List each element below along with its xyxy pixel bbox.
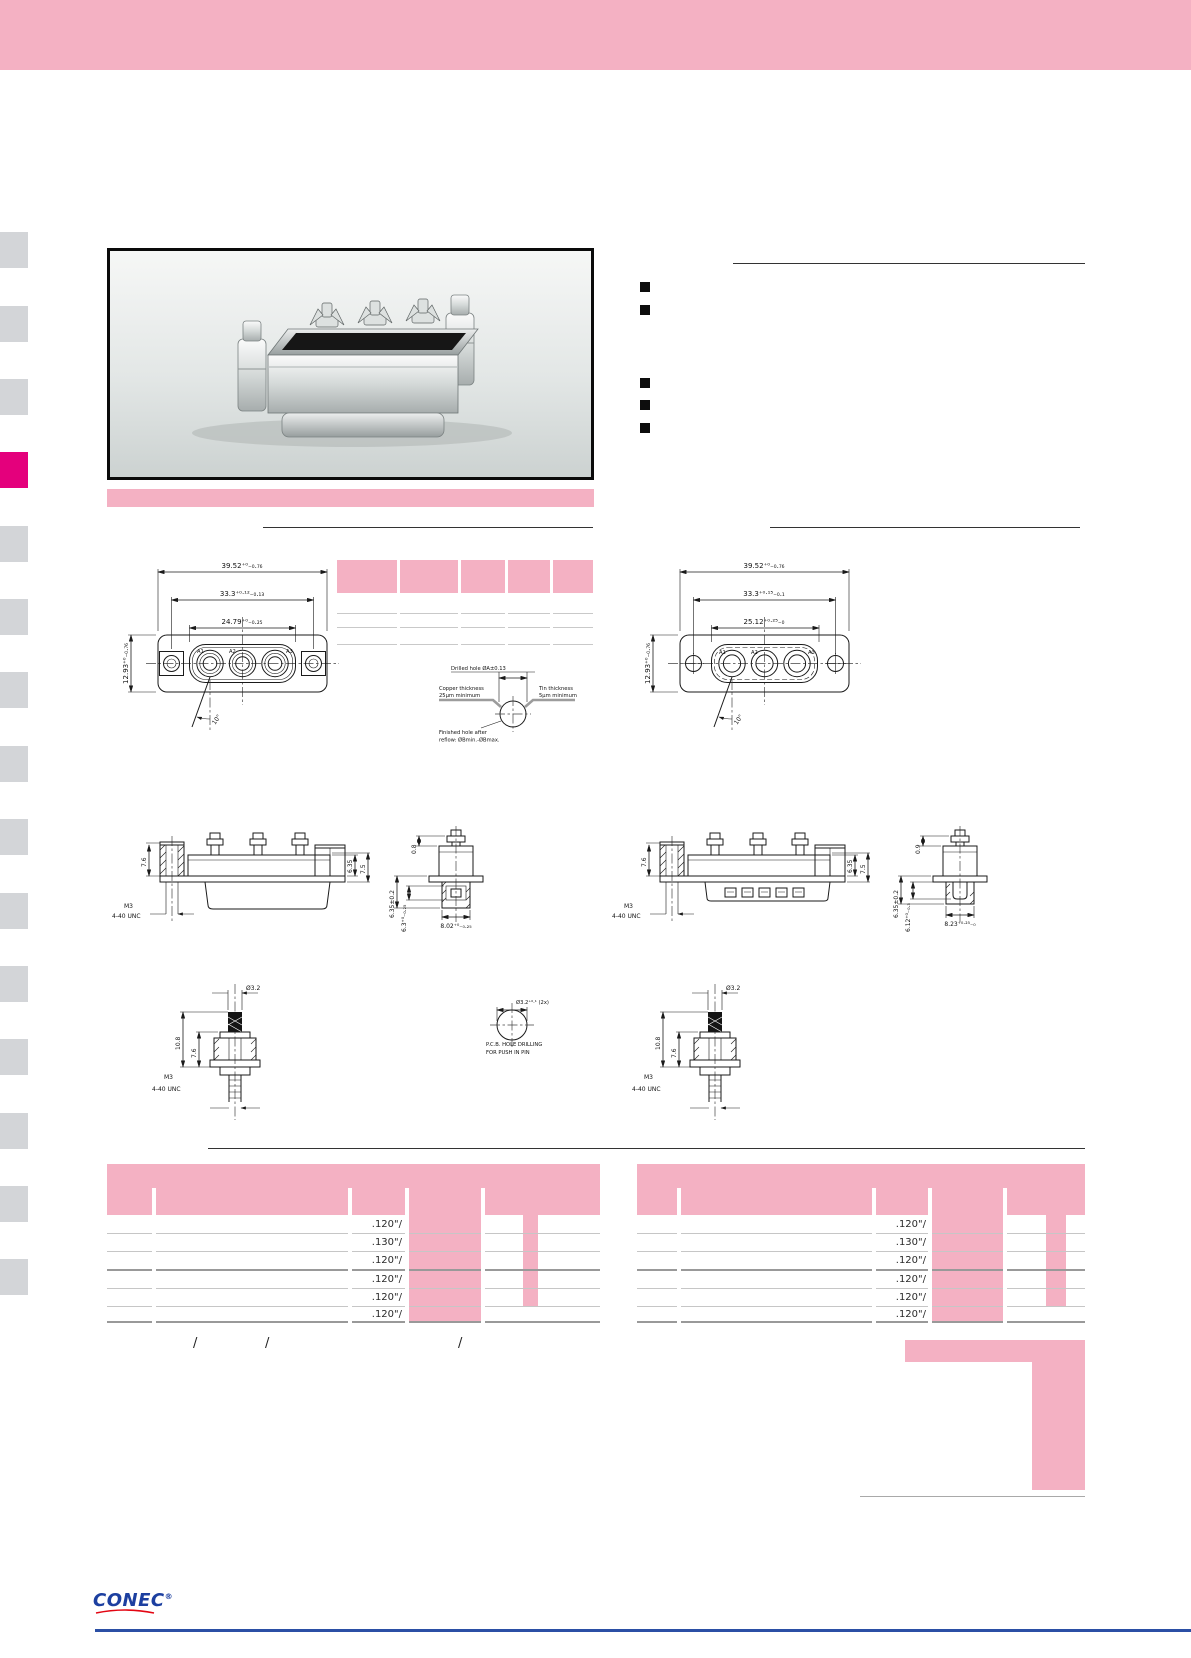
dim-body-height: 6.35 [847,859,854,873]
dim-total-height: 7.5 [360,864,367,874]
footnote-separator: / [265,1336,269,1351]
feature-bullet-icon [640,378,650,388]
spec-mini-table [337,560,593,645]
table-bottom-border [107,1321,600,1323]
table-header-cell [409,1188,481,1215]
side-tab [0,1113,28,1149]
row-divider [637,1251,1085,1252]
thread-label: M3 [644,1074,653,1081]
side-tab [0,672,28,708]
dim-offset: 0.8 [411,844,418,854]
dim-height-body: 7.6 [191,1048,198,1058]
footnote-separator: / [193,1336,197,1351]
section-rule-right [770,527,1080,528]
feature-bullet-icon [640,305,650,315]
dim-total-height: 7.5 [860,864,867,874]
product-photo [107,248,594,480]
highlight-stripe [1046,1215,1066,1306]
section-rule-left [263,527,593,528]
table-cell-value: .120"/ [876,1274,929,1285]
side-tab [0,306,28,342]
end-view-left-drawing: 0.8 6.35±0.2 6.3⁺⁰₋₀.₂₅ 8.02⁺⁰₋₀.₂₅ [386,826,501,938]
side-tab [0,893,28,929]
dim-hole-spacing: 33.3⁺⁰·¹²₋₀.₁₃ [220,590,264,598]
table-cell-value: .120"/ [876,1309,929,1320]
dim-angle: 10° [211,713,223,726]
table-header-cell [156,1188,348,1215]
drill-hole-detail-drawing: Drilled hole ØA±0.13 Copper thickness 25… [437,662,577,750]
dim-block-width: 8.02⁺⁰₋₀.₂₅ [440,923,472,930]
contact-label: A3 [808,650,815,656]
table-header-cell [1007,1188,1085,1215]
thread-label: M3 [624,903,633,910]
table-cell-value: .120"/ [876,1292,929,1303]
thread-label: 4-40 UNC [152,1086,181,1093]
dim-slot: 6.3⁺⁰₋₀.₂₅ [401,904,408,932]
table-cell-value: .120"/ [352,1219,405,1230]
pcb-note: FOR PUSH IN PIN [486,1050,530,1056]
spec-col [553,560,593,645]
dim-height-total: 10.8 [655,1036,662,1050]
table-cell-value: .120"/ [352,1255,405,1266]
dim-standoff-height: 7.6 [641,857,648,867]
dim-pcb-hole: Ø3.2⁺⁰·¹ (2x) [516,999,549,1006]
boardlock-left-drawing: Ø3.2 10.8 7.6 M3 4-40 UNC [150,980,270,1125]
side-tab-active [0,452,28,488]
top-band [0,0,1191,70]
note-highlight-bar [905,1340,1085,1362]
conec-logo: CONEC® [93,1590,173,1611]
spec-col [400,560,458,645]
dim-angle: 10° [733,713,745,726]
thread-label: 4-40 UNC [112,913,141,920]
footnote-separator: / [458,1336,462,1351]
copper-note: 25μm minimum [439,693,480,699]
front-view-right-drawing: A1 A2 A3 39.52⁺⁰₋₀.₇₆ 33.3⁺⁰·¹⁵₋₀.₁ 25.1… [640,555,900,785]
table-header-cell [352,1188,405,1215]
side-tab [0,1259,28,1295]
side-view-left-drawing: 7.6 6.35 7.5 M3 4-40 UNC [110,828,380,928]
dim-hole-spacing: 33.3⁺⁰·¹⁵₋₀.₁ [743,590,785,598]
dim-overall-width: 39.52⁺⁰₋₀.₇₆ [744,562,785,570]
feature-bullet-icon [640,282,650,292]
side-tab [0,819,28,855]
spec-col [508,560,550,645]
dim-depth: 6.35±0.2 [893,890,900,918]
tin-note: Tin thickness [538,686,573,692]
order-table-right: .120"/ .130"/ .120"/ .120"/ .120"/ .120"… [637,1164,1085,1323]
row-divider [637,1306,1085,1307]
finished-hole-note: Finished hole after [439,730,488,736]
boardlock-right-drawing: Ø3.2 10.8 7.6 M3 4-40 UNC [630,980,750,1125]
contact-label: A2 [751,650,758,656]
datasheet-page: A1 A2 A3 39.52⁺⁰₋₀.₇₆ 33.3⁺⁰·¹²₋₀.₁₃ 24.… [0,0,1191,1658]
table-cell-value: .120"/ [352,1274,405,1285]
order-table-left: .120"/ .130"/ .120"/ .120"/ .120"/ .120"… [107,1164,600,1323]
contact-label: A3 [286,649,293,655]
contact-label: A1 [197,649,204,655]
copper-note: Copper thickness [439,686,484,692]
spec-col [337,560,397,645]
row-divider [107,1288,600,1289]
table-cell-value: .120"/ [876,1219,929,1230]
end-view-right-drawing: 0.9 6.35±0.2 6.12⁺⁰₋₀.₃ 8.23⁺⁰·²⁵₋₀ [890,826,1005,938]
row-divider [637,1233,1085,1234]
side-tab [0,966,28,1002]
table-cell-value: .120"/ [876,1255,929,1266]
dim-standoff-height: 7.6 [141,857,148,867]
dim-insert-width: 24.79⁺⁰₋₀.₂₅ [222,618,263,626]
table-cell-value: .120"/ [352,1309,405,1320]
side-tab [0,599,28,635]
logo-text: CONEC [93,1590,165,1611]
table-header-band [107,1164,600,1188]
row-divider [637,1288,1085,1289]
dim-slot: 6.12⁺⁰₋₀.₃ [905,903,912,932]
highlight-stripe [523,1215,538,1306]
table-cell-value: .130"/ [876,1237,929,1248]
spec-col [461,560,505,645]
dim-height-total: 10.8 [175,1036,182,1050]
thread-label: 4-40 UNC [612,913,641,920]
logo-swoosh-icon [95,1609,155,1614]
table-header-cell [485,1188,600,1215]
dim-pin-diameter: Ø3.2 [726,985,740,992]
row-divider [107,1251,600,1252]
table-cell-value: .130"/ [352,1237,405,1248]
finished-hole-note: reflow: ØBmin.-ØBmax. [439,737,500,744]
dim-height: 12.93⁺⁰₋₀.₇₆ [644,643,652,684]
dim-offset: 0.9 [915,844,922,854]
contact-label: A2 [229,649,236,655]
dim-overall-width: 39.52⁺⁰₋₀.₇₆ [222,562,263,570]
note-highlight-column [1032,1362,1085,1490]
side-view-right-drawing: 7.6 6.35 7.5 M3 4-40 UNC [610,828,880,928]
side-tab [0,1039,28,1075]
drill-title: Drilled hole ØA±0.13 [451,665,506,672]
pcb-note: P.C.B. HOLE DRILLING [486,1042,542,1048]
thread-label: M3 [124,903,133,910]
pcb-hole-drawing: Ø3.2⁺⁰·¹ (2x) P.C.B. HOLE DRILLING FOR P… [450,995,580,1065]
side-tab [0,232,28,268]
dim-height: 12.93⁺⁰₋₀.₇₆ [122,643,130,684]
feature-bullet-icon [640,423,650,433]
side-tab [0,1186,28,1222]
side-tab [0,746,28,782]
dim-block-width: 8.23⁺⁰·²⁵₋₀ [944,921,976,928]
note-underline [860,1496,1085,1497]
order-section-rule [208,1148,1085,1149]
table-header-cell [681,1188,872,1215]
side-tab [0,526,28,562]
table-header-cell [637,1188,677,1215]
table-header-cell [107,1188,152,1215]
table-cell-value: .120"/ [352,1292,405,1303]
thread-label: M3 [164,1074,173,1081]
row-divider [107,1233,600,1234]
feature-bullet-icon [640,400,650,410]
dim-pin-diameter: Ø3.2 [246,985,260,992]
table-header-band [637,1164,1085,1188]
table-header-cell [932,1188,1003,1215]
row-divider [637,1269,1085,1271]
table-bottom-border [637,1321,1085,1323]
thread-label: 4-40 UNC [632,1086,661,1093]
tin-note: 5μm minimum [539,693,577,699]
dim-insert-width: 25.12⁺⁰·²⁵₋₀ [744,618,785,626]
row-divider [107,1306,600,1307]
table-header-cell [876,1188,928,1215]
dim-depth: 6.35±0.2 [389,890,396,918]
series-title-bar [107,489,594,507]
dim-body-height: 6.35 [347,859,354,873]
header-rule [733,263,1085,264]
footer-rule [95,1629,1191,1632]
contact-label: A1 [719,650,726,656]
dim-height-body: 7.6 [671,1048,678,1058]
side-tab [0,379,28,415]
registered-mark: ® [165,1592,174,1601]
row-divider [107,1269,600,1271]
connector-photo-illustration [110,251,591,477]
